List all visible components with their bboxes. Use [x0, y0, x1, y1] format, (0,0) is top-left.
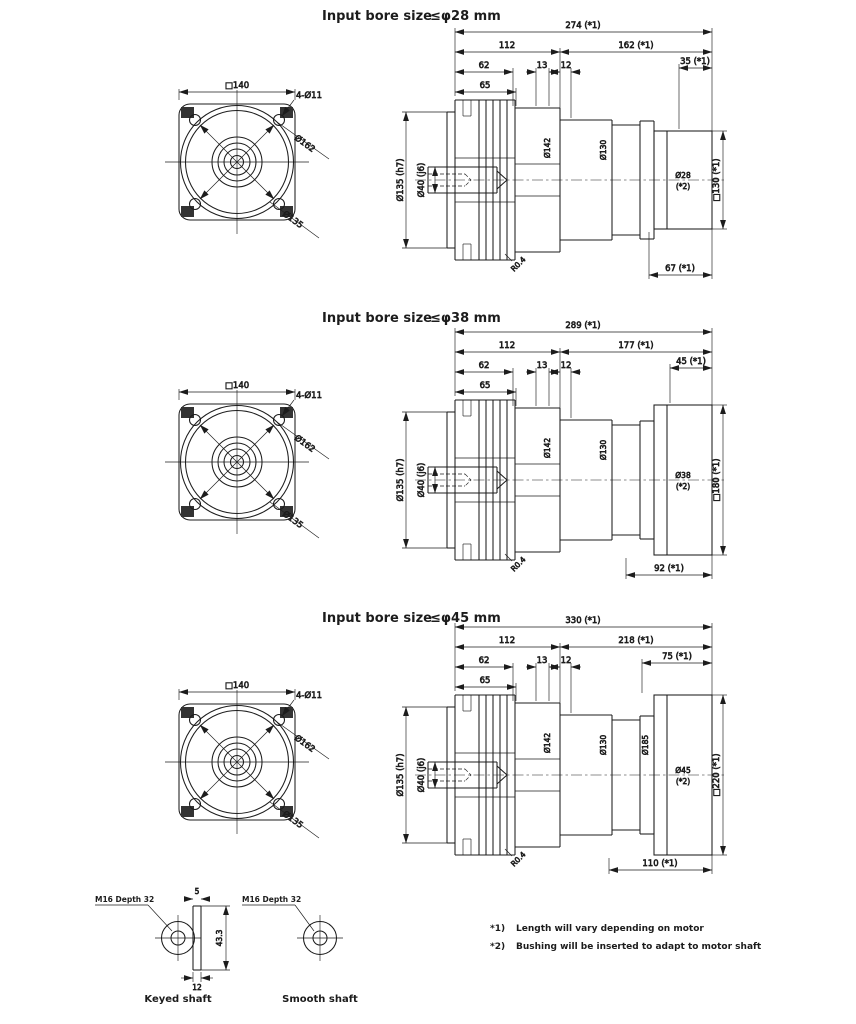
keyed-shaft-view: 5 43.3 12 M16 Depth 32 Keyed shaft: [95, 887, 230, 1005]
dim-shaft: Ø40 (j6): [416, 163, 427, 198]
keyway-dims: 5 43.3 12: [181, 887, 230, 992]
dim-input-bore: Ø45: [675, 766, 691, 775]
dim-adapter-right: 45 (*1): [676, 357, 706, 367]
section-title: Input bore size: [322, 9, 432, 24]
side-view: 330 (*1) 112 218 (*1) 62 13 12 65 75 (*1…: [395, 616, 727, 874]
technical-drawing-page: □140 4-Ø11 Ø162 Ø135: [0, 0, 856, 1024]
dim-input-bore-note: (*2): [676, 777, 690, 786]
side-view: 274 (*1) 112 162 (*1) 62 13 12 65 35 (*1…: [395, 21, 727, 279]
side-view: 289 (*1) 112 177 (*1) 62 13 12 65 45 (*1…: [395, 321, 727, 579]
dim-flange-c: 12: [561, 61, 572, 71]
dim-flange-b: 13: [537, 361, 548, 371]
dim-body-2: Ø130: [599, 440, 608, 460]
dim-flange-c: 12: [561, 656, 572, 666]
section-title-bore: ≤φ38 mm: [430, 311, 501, 326]
dim-body-2: Ø130: [599, 735, 608, 755]
key-side-dim: 43.3: [215, 929, 224, 946]
dim-motor-side: 162 (*1): [618, 41, 653, 51]
footnote-1-marker: *1): [490, 924, 505, 934]
dim-gearhead: 112: [499, 341, 515, 351]
dim-body-1: Ø142: [543, 733, 552, 753]
dim-flange-a: 62: [479, 61, 490, 71]
dim-motor-side: 177 (*1): [618, 341, 653, 351]
dim-input-bore: Ø28: [675, 171, 691, 180]
footnote-2-marker: *2): [490, 942, 505, 952]
dim-body-1: Ø142: [543, 138, 552, 158]
keyed-shaft-label: Keyed shaft: [144, 994, 211, 1005]
dim-flange-d: 65: [480, 381, 491, 391]
dim-pilot: Ø135 (h7): [395, 158, 406, 201]
key-top-dim: 5: [195, 887, 200, 896]
dim-motor-flange: □180 (*1): [712, 458, 722, 501]
footnote-2-text: Bushing will be inserted to adapt to mot…: [516, 942, 762, 952]
section-title: Input bore size: [322, 311, 432, 326]
dim-shaft: Ø40 (j6): [416, 463, 427, 498]
keyed-tap-callout: M16 Depth 32: [95, 895, 154, 904]
dim-adapter-right: 75 (*1): [662, 652, 692, 662]
section-bore-38: Input bore size ≤φ38 mm 289 (*1) 112: [165, 311, 727, 579]
dim-flange-a: 62: [479, 656, 490, 666]
gearhead-dimension-drawing: □140 4-Ø11 Ø162 Ø135: [0, 0, 856, 1024]
dim-bottom: 67 (*1): [665, 264, 695, 274]
dim-total: 274 (*1): [565, 21, 600, 31]
dim-flange-d: 65: [480, 81, 491, 91]
dim-flange-d: 65: [480, 676, 491, 686]
dim-motor-flange: □220 (*1): [712, 753, 722, 796]
dim-fillet: R0.4: [509, 555, 528, 574]
smooth-tap-callout: M16 Depth 32: [242, 895, 301, 904]
dim-input-bore-note: (*2): [676, 182, 690, 191]
dim-motor-flange: □130 (*1): [712, 158, 722, 201]
dim-input-bore-note: (*2): [676, 482, 690, 491]
dim-bottom: 110 (*1): [642, 859, 677, 869]
dim-fillet: R0.4: [509, 255, 528, 274]
section-title: Input bore size: [322, 611, 432, 626]
smooth-shaft-label: Smooth shaft: [282, 994, 358, 1005]
dim-flange-b: 13: [537, 656, 548, 666]
dim-flange-c: 12: [561, 361, 572, 371]
dim-flange-a: 62: [479, 361, 490, 371]
dim-gearhead: 112: [499, 41, 515, 51]
dim-total: 330 (*1): [565, 616, 600, 626]
dim-shaft: Ø40 (j6): [416, 758, 427, 793]
section-bore-45: Input bore size ≤φ45 mm 330 (*1) 112: [165, 611, 727, 874]
dim-body-1: Ø142: [543, 438, 552, 458]
dim-pilot: Ø135 (h7): [395, 458, 406, 501]
dim-motor-side: 218 (*1): [618, 636, 653, 646]
section-bore-28: Input bore size ≤φ28 mm 274 (*1) 112: [165, 9, 727, 279]
section-title-bore: ≤φ28 mm: [430, 9, 501, 24]
dim-flange-b: 13: [537, 61, 548, 71]
dim-input-bore: Ø38: [675, 471, 691, 480]
dim-gearhead: 112: [499, 636, 515, 646]
section-title-bore: ≤φ45 mm: [430, 611, 501, 626]
footnote-1-text: Length will vary depending on motor: [516, 924, 704, 934]
dim-fillet: R0.4: [509, 850, 528, 869]
key-bottom-dim: 12: [192, 983, 202, 992]
dim-adapter-right: 35 (*1): [680, 57, 710, 67]
dim-body-2: Ø130: [599, 140, 608, 160]
dim-total: 289 (*1): [565, 321, 600, 331]
dim-pilot: Ø135 (h7): [395, 753, 406, 796]
footnotes: *1) Length will vary depending on motor …: [490, 924, 762, 952]
dim-bottom: 92 (*1): [654, 564, 684, 574]
smooth-shaft-view: M16 Depth 32 Smooth shaft: [242, 895, 358, 1005]
dim-body-3: Ø185: [641, 735, 650, 755]
